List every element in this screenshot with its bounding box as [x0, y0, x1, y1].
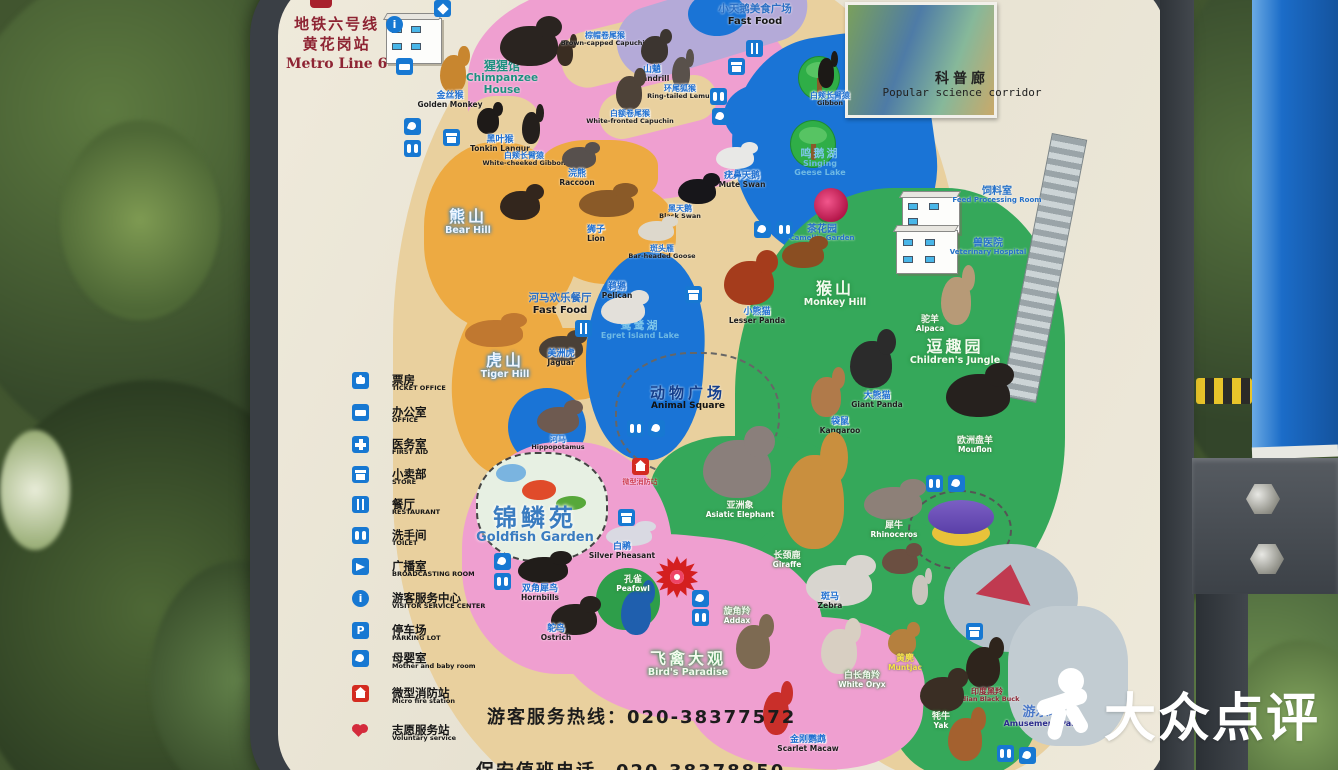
sign-post-right [1160, 0, 1194, 770]
office-icon [352, 404, 369, 421]
animal-sprite [948, 718, 982, 761]
zoo-map-sign-photo: 地铁六号线 黄花岗站 Metro Line 6 猩猩馆Chimpanzee Ho… [0, 0, 1338, 770]
fire-icon [632, 458, 649, 475]
foliage-highlight [60, 120, 220, 320]
animal-label: 大熊猫Giant Panda [851, 392, 902, 409]
store-icon [728, 58, 745, 75]
animal-label: 双角犀鸟Hornbills [521, 585, 559, 602]
animal-label: 亚洲象Asiatic Elephant [706, 502, 775, 519]
animal-sprite [818, 58, 834, 88]
legend-label-en: OFFICE [392, 416, 487, 424]
animal-label: 白颊长臂猿Gibbon [810, 92, 850, 107]
animal-sprite [522, 112, 540, 144]
animal-label: 小熊猫Lesser Panda [729, 308, 785, 325]
animal-label: 旋角羚Addax [723, 608, 750, 625]
legend-label-en: Mother and baby room [392, 662, 487, 670]
animal-label: 斑马Zebra [818, 593, 843, 610]
baby-icon [352, 650, 369, 667]
service-hotline-label: 游客服务热线： [487, 707, 627, 728]
animal-label: 棕帽卷尾猴Brown-capped Capuchin [561, 32, 650, 47]
animal-label: 金丝猴Golden Monkey [417, 92, 482, 109]
striped-pole [1196, 378, 1252, 404]
legend-item-info: i游客服务中心VISITOR SERVICE CENTER [352, 590, 502, 620]
legend-label-en: TICKET OFFICE [392, 384, 487, 392]
area-label: 小天鹅美食广场Fast Food [718, 4, 792, 27]
animal-label: 鹈鹕Pelican [602, 283, 633, 300]
baby-icon [404, 118, 421, 135]
animal-label: 长颈鹿Giraffe [773, 552, 802, 569]
metro-info: 地铁六号线 黄花岗站 Metro Line 6 [286, 14, 387, 73]
legend-item-toilet: 洗手间TOILET [352, 527, 502, 557]
area-label: 飞禽大观Bird's Paradise [648, 650, 728, 678]
animal-label: 犀牛Rhinoceros [870, 522, 917, 539]
foliage-skygap [0, 430, 70, 550]
toilet-icon [352, 527, 369, 544]
animal-sprite [616, 76, 642, 110]
area-label: 科普廊Popular science corridor [883, 72, 1042, 99]
toilet-icon [997, 745, 1014, 762]
animal-label: 浣熊Raccoon [559, 170, 594, 187]
animal-label: 金刚鹦鹉Scarlet Macaw [777, 736, 838, 753]
goldfish-red [522, 480, 556, 500]
baby-icon [712, 108, 729, 125]
animal-sprite [920, 677, 964, 712]
animal-label: 驼羊Alpaca [916, 316, 944, 333]
area-label: 逗趣园Children's Jungle [910, 338, 1000, 366]
legend-item-ticket: 票房TICKET OFFICE [352, 372, 502, 402]
area-label: 熊山Bear Hill [445, 208, 491, 236]
animal-label: 白颊长臂猿White-cheeked Gibbon [483, 152, 566, 167]
security-phone: 保安值班电话 020-38378850 [476, 757, 785, 770]
store-icon [443, 129, 460, 146]
animal-sprite [946, 374, 1010, 417]
animal-sprite [821, 629, 857, 674]
baby-icon [1019, 747, 1036, 764]
animal-label: 疣鼻天鹅Mute Swan [719, 172, 766, 189]
animal-label: 美洲虎Jaguar [547, 350, 574, 367]
legend-label-en: Voluntary service [392, 734, 487, 742]
area-label: 饲料室Feed Processing Room [952, 186, 1041, 205]
service-hotline: 游客服务热线：020-38377572 [487, 703, 796, 729]
animal-sprite [782, 242, 824, 268]
legend-label-en: PARKING LOT [392, 634, 487, 642]
animal-sprite [562, 147, 596, 169]
animal-sprite [966, 647, 1000, 688]
animal-sprite [601, 297, 645, 324]
watermark-brand-text: 大众点评 [1104, 676, 1320, 751]
camellia-flower [814, 188, 848, 222]
legend-item-parking: P停车场PARKING LOT [352, 622, 502, 652]
animal-sprite [518, 557, 568, 583]
legend-label-en: FIRST AID [392, 448, 487, 456]
animal-label: 鸵鸟Ostrich [541, 625, 571, 642]
baby-icon [692, 590, 709, 607]
info-icon: i [352, 590, 369, 607]
parking-icon: P [352, 622, 369, 639]
animal-sprite [638, 221, 674, 241]
animal-sprite [678, 179, 716, 204]
animal-label: 斑头雁Bar-headed Goose [628, 245, 695, 260]
animal-sprite [477, 108, 499, 134]
metro-line-en: Metro Line 6 [286, 55, 387, 74]
toilet-icon [627, 420, 644, 437]
legend-item-fire: 微型消防站Micro fire station [352, 685, 502, 715]
rest-icon [746, 40, 763, 57]
store-icon [352, 466, 369, 483]
round-building [928, 500, 994, 534]
animal-label: 河马Hippopotamus [531, 436, 584, 451]
legend-label-en: VISITOR SERVICE CENTER [392, 602, 487, 610]
legend-item-office: 办公室OFFICE [352, 404, 502, 434]
animal-sprite [736, 625, 770, 669]
legend-item-heart: 志愿服务站Voluntary service [352, 722, 502, 752]
store-icon [618, 509, 635, 526]
toilet-icon [710, 88, 727, 105]
area-label: 微型消防站 [623, 479, 658, 487]
animal-sprite [537, 407, 579, 434]
animal-sprite [716, 147, 754, 169]
animal-sprite [912, 575, 928, 605]
animal-sprite [888, 629, 916, 656]
animal-sprite [724, 261, 774, 305]
legend-item-firstaid: 医务室FIRST AID [352, 436, 502, 466]
animal-sprite [465, 320, 523, 347]
animal-label: 牦牛Yak [932, 713, 950, 730]
toilet-icon [692, 609, 709, 626]
rest-icon [575, 320, 592, 337]
ticket-icon [352, 372, 369, 389]
legend-label-en: STORE [392, 478, 487, 486]
animal-label: 狮子Lion [587, 226, 605, 243]
animal-sprite [500, 26, 558, 66]
heart-icon [352, 722, 369, 739]
office-icon [396, 58, 413, 75]
blue-pillar [1252, 0, 1338, 456]
photo-inset [845, 2, 997, 118]
security-phone-number: 020-38378850 [616, 761, 785, 770]
area-label: 鸣鹅湖Singing Geese Lake [794, 148, 845, 178]
animal-label: 白长角羚White Oryx [838, 672, 885, 689]
animal-sprite [850, 341, 892, 388]
area-label: 动物广场Animal Square [650, 385, 726, 411]
animal-sprite [941, 277, 971, 325]
store-icon [685, 286, 702, 303]
animal-label: 孔雀Peafowl [616, 576, 650, 593]
animal-sprite [811, 377, 841, 417]
diamond-icon [434, 0, 451, 17]
area-label: 兽医院Veterinary Hospital [950, 238, 1027, 257]
broadcast-icon [352, 558, 369, 575]
security-phone-label: 保安值班电话 [476, 761, 596, 770]
animal-sprite [579, 190, 634, 217]
area-label: 鹭鸶湖Egret Island Lake [601, 320, 679, 341]
animal-sprite [703, 440, 771, 498]
animal-label: 白鹇Silver Pheasant [589, 543, 655, 560]
legend-item-rest: 餐厅RESTAURANT [352, 496, 502, 526]
legend-label-en: RESTAURANT [392, 508, 487, 516]
toilet-icon [404, 140, 421, 157]
fire-icon [352, 685, 369, 702]
legend-item-baby: 母婴室Mother and baby room [352, 650, 502, 680]
metro-station-zh: 黄花岗站 [286, 34, 387, 54]
firstaid-icon [352, 436, 369, 453]
legend-item-broadcast: 广播室BROADCASTING ROOM [352, 558, 502, 588]
animal-sprite [782, 455, 844, 549]
area-label: 猴山Monkey Hill [804, 280, 866, 308]
legend-label-en: BROADCASTING ROOM [392, 570, 487, 578]
metro-logo-partial [310, 0, 332, 8]
animal-label: 环尾狐猴Ring-tailed Lemur [647, 85, 713, 100]
store-icon [966, 623, 983, 640]
animal-sprite [440, 55, 466, 93]
animal-sprite [500, 191, 540, 220]
animal-sprite [882, 549, 918, 574]
metro-line-zh: 地铁六号线 [286, 14, 387, 34]
animal-sprite [621, 591, 651, 635]
animal-label: 黄麂Muntjac [888, 655, 922, 672]
animal-label: 袋鼠Kangaroo [820, 418, 861, 435]
vet-hospital-building [896, 230, 958, 274]
baby-icon [754, 221, 771, 238]
legend-label-en: TOILET [392, 539, 487, 547]
baby-icon [648, 420, 665, 437]
rest-icon [352, 496, 369, 513]
animal-sprite [641, 36, 668, 64]
info-icon: i [386, 16, 403, 33]
animal-label: 欧洲盘羊Mouflon [957, 437, 993, 454]
animal-label: 白额卷尾猴White-fronted Capuchin [586, 110, 674, 125]
animal-sprite [864, 487, 922, 520]
animal-label: 印度黑羚Indian Black Buck [955, 688, 1020, 703]
toilet-icon [926, 475, 943, 492]
area-label: 河马欢乐餐厅Fast Food [529, 293, 592, 316]
legend-item-store: 小卖部STORE [352, 466, 502, 496]
baby-icon [948, 475, 965, 492]
toilet-icon [776, 221, 793, 238]
legend-label-en: Micro fire station [392, 697, 487, 705]
service-hotline-number: 020-38377572 [627, 707, 796, 728]
